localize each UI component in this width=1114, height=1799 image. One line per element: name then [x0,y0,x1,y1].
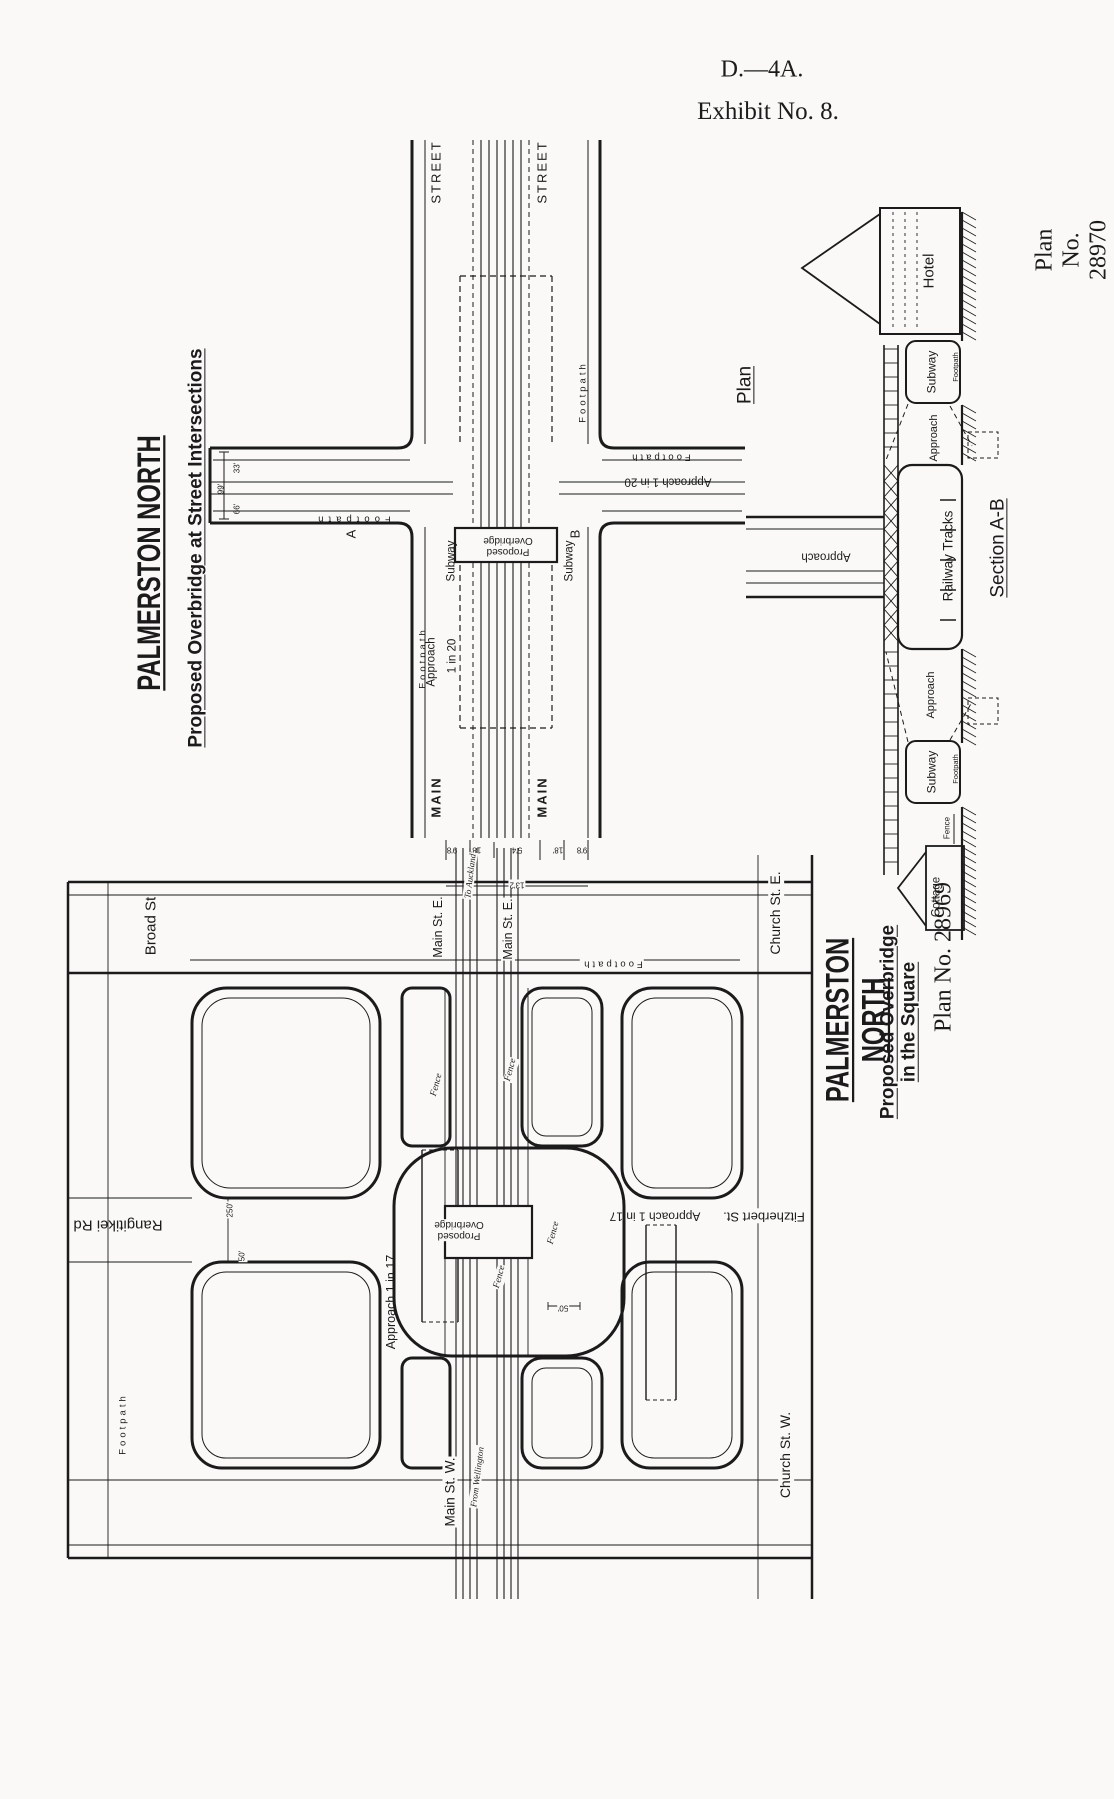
plan-label: Plan [734,366,755,404]
tp-dim-9-8-a: 9'8 [447,845,457,854]
tp-dim-33: 33' [234,463,243,473]
sec-footpath-top: Footpath [952,352,960,382]
hdr-d4a: D.—4A. [721,57,804,84]
tp-dim-5-4: 5'4 [512,845,522,854]
bp-fence-1: Fence [429,1072,445,1097]
tp-subway-right: Subway [564,541,577,582]
bp-to-auckland: To Auckland [462,852,478,900]
tp-footpath-left-arm: Footpath [313,513,391,524]
bp-proposed-ob: Proposed Overbridge [433,1219,484,1241]
bp-main-st-e-left: Main St. E. [431,895,445,958]
bp-broad-st: Broad St [144,897,161,955]
hdr-exhibit: Exhibit No. 8. [697,98,839,126]
bp-dim-250: 250' [227,1202,236,1219]
bp-fence-2: Fence [503,1056,520,1083]
scanned-plan-page: D.—4A.Exhibit No. 8.Plan No. 28970PALMER… [0,0,1114,1799]
tp-dim-18-b: 18' [553,845,563,854]
tp-subway-left: Subway [446,541,459,582]
sec-railway-tracks: Railway Tracks [940,511,955,602]
bp-main-st-e-right: Main St. E. [501,897,515,960]
bp-approach-right: Approach 1 in 17 [610,1209,701,1222]
t1-sub: Proposed Overbridge at Street Intersecti… [185,348,206,747]
bp-fitzherbert: Fitzherbert St. [722,1209,806,1224]
sec-fence: Fence [944,817,953,839]
bp-church-st-w: Church St. W. [778,1411,794,1499]
t2-sub: Proposed Overbridge in the Square [878,915,921,1130]
bp-fence-3: Fence [492,1263,509,1290]
tp-main-right: MAIN [536,775,551,818]
tp-proposed-ob: Proposed Overbridge [482,535,533,557]
t2-plan-no: Plan No. 28969 [931,882,958,1032]
tp-footpath-right-edge: Footpath [579,361,590,423]
tp-approach-1in20-right: Approach 1 in 20 [625,475,712,488]
tp-street-left: STREET [430,139,445,204]
tp-1in20-below: 1 in 20 [447,638,460,675]
section-label: Section A-B [987,498,1008,597]
sec-hotel: Hotel [922,253,939,288]
tp-b: B [569,530,584,539]
sec-approach-top: Approach [928,414,940,461]
t1-plan-no: Plan No. 28970 [1032,220,1113,280]
bp-dim-50b: 50' [557,1303,569,1312]
t1-title: PALMERSTON NORTH [132,435,168,690]
tp-dim-99: 99' [218,484,227,494]
bp-footpath-top: Footpath [580,958,644,969]
sec-subway-top: Subway [925,351,938,394]
bp-rangitikei: Rangitikei Rd [73,1216,162,1233]
bp-footpath-left: Footpath [119,1393,130,1455]
bp-dim-50a: 50' [239,1250,248,1262]
tp-footpath-right-arm: Footpath [629,451,691,462]
tp-street-right: STREET [536,139,551,204]
sec-approach-bottom: Approach [925,671,937,718]
bp-approach-left: Approach 1 in 17 [384,1255,398,1350]
bp-main-st-w: Main St. W. [442,1456,457,1527]
bp-church-st-e: Church St. E. [768,870,784,955]
tp-main-left: MAIN [430,775,445,818]
sec-approach-road: Approach [800,550,851,563]
label-layer: D.—4A.Exhibit No. 8.Plan No. 28970PALMER… [0,0,1114,1799]
tp-approach-below: Approach [426,636,439,687]
tp-a: A [345,530,360,539]
sec-footpath-bottom: Footpath [952,754,960,784]
bp-from-wellington: From Wellington [468,1445,486,1508]
bp-fence-4: Fence [546,1220,562,1245]
tp-dim-9-8-b: 9'8 [577,845,587,854]
tp-dim-13-2: 13'2 [509,880,526,889]
sec-subway-bottom: Subway [925,751,938,794]
tp-dim-66: 66' [234,504,243,514]
